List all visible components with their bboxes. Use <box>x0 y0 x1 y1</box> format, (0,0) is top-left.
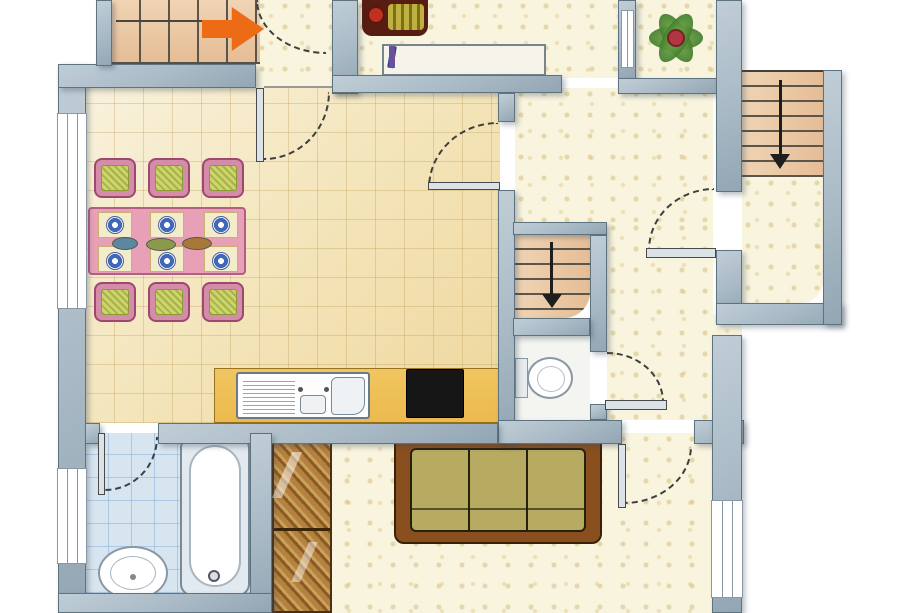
sofa-seat-edge-line <box>412 508 584 510</box>
window-pane-line <box>627 11 628 67</box>
window-pane-line <box>67 114 68 308</box>
washbasin-bowl <box>110 556 156 590</box>
wall-mid-stairs-top <box>513 222 607 235</box>
wardrobe <box>272 436 332 613</box>
plate-icon <box>212 252 230 270</box>
chair-seat <box>101 165 129 191</box>
sofa <box>394 432 602 544</box>
flower-decor <box>362 0 428 36</box>
chair <box>148 282 190 322</box>
chair-seat <box>209 289 237 315</box>
bathtub-basin <box>189 445 241 587</box>
window-pane-line <box>77 114 78 308</box>
wall-right-room-upper <box>716 0 742 192</box>
place-setting <box>98 212 132 238</box>
serving-dish <box>112 237 138 250</box>
sink-drainer <box>243 378 295 414</box>
sink-basin-large <box>331 377 365 415</box>
entry-door-threshold <box>264 86 332 88</box>
plate-icon <box>158 252 176 270</box>
chair-seat <box>209 165 237 191</box>
wardrobe-divider <box>274 528 330 531</box>
plate-icon <box>212 216 230 234</box>
plant-flower-icon <box>667 29 685 47</box>
wall-outer-bottom <box>58 593 272 613</box>
sofa-cushion-divider <box>526 450 528 530</box>
down-arrow-right-shaft <box>779 80 782 158</box>
door-leaf-entry <box>256 88 264 162</box>
place-setting <box>204 212 238 238</box>
wardrobe-glare <box>291 542 318 582</box>
floor-plan <box>0 0 920 613</box>
stairs-top-left-rail-line <box>116 20 208 22</box>
down-arrow-right-icon <box>770 154 790 169</box>
wall-hall-bottom-left <box>498 420 622 444</box>
wall-kitchen-door-stub <box>498 93 515 122</box>
wall-wc-right-upper <box>590 235 607 352</box>
plate-icon <box>158 216 176 234</box>
down-arrow-mid-shaft <box>550 242 553 296</box>
serving-dish <box>182 237 212 250</box>
chair <box>202 158 244 198</box>
faucet-icon <box>324 387 329 392</box>
door-leaf-bathroom <box>98 433 105 495</box>
floor-stair-room-right <box>742 177 823 303</box>
chair <box>202 282 244 322</box>
plate-icon <box>106 216 124 234</box>
window-pane-line <box>77 469 78 563</box>
chair-seat <box>155 165 183 191</box>
potted-plant <box>645 8 707 68</box>
window-pane-line <box>732 501 733 597</box>
wall-plant-room-bottom <box>618 78 718 94</box>
chair-seat <box>155 289 183 315</box>
bathtub <box>180 436 250 596</box>
bathtub-drain-icon <box>208 570 220 582</box>
window-living-room <box>711 500 743 598</box>
flower-icon <box>368 7 384 23</box>
chair-seat <box>101 289 129 315</box>
dining-table <box>88 207 246 275</box>
stove <box>406 369 464 418</box>
wall-bathroom-right <box>250 433 272 613</box>
place-setting <box>150 212 184 238</box>
flower-decor-stripes <box>388 4 424 30</box>
serving-dish <box>146 238 176 251</box>
wall-top-left <box>58 64 256 88</box>
place-setting <box>204 246 238 272</box>
wall-wc-top <box>513 318 590 336</box>
window-pane-line <box>67 469 68 563</box>
kitchen-sink <box>236 372 370 419</box>
window-plant-room <box>621 10 634 68</box>
wardrobe-glare <box>272 452 302 498</box>
window-dining <box>57 113 87 309</box>
faucet-icon <box>298 387 303 392</box>
door-leaf-living-room <box>618 444 626 508</box>
wall-kitchen-top <box>332 75 562 93</box>
window-pane-line <box>722 501 723 597</box>
door-leaf-wc <box>605 400 667 410</box>
chair <box>94 158 136 198</box>
door-leaf-kitchen <box>428 182 500 190</box>
toilet-bowl <box>537 366 565 392</box>
bookshelf <box>382 44 546 76</box>
window-bathroom <box>57 468 87 564</box>
door-leaf-right-room <box>646 248 716 258</box>
washbasin <box>98 546 168 600</box>
sink-basin-small <box>300 395 326 414</box>
toilet <box>527 357 573 399</box>
down-arrow-mid-icon <box>542 294 562 308</box>
chair <box>148 158 190 198</box>
wall-kitchen-bottom <box>158 423 498 444</box>
book-icon <box>389 46 395 68</box>
chair <box>94 282 136 322</box>
washbasin-drain-icon <box>130 574 136 580</box>
plate-icon <box>106 252 124 270</box>
sofa-cushion-divider <box>468 450 470 530</box>
wall-outer-right-top <box>823 70 842 325</box>
wall-stairwell-left <box>96 0 112 66</box>
sofa-cushions <box>410 448 586 532</box>
